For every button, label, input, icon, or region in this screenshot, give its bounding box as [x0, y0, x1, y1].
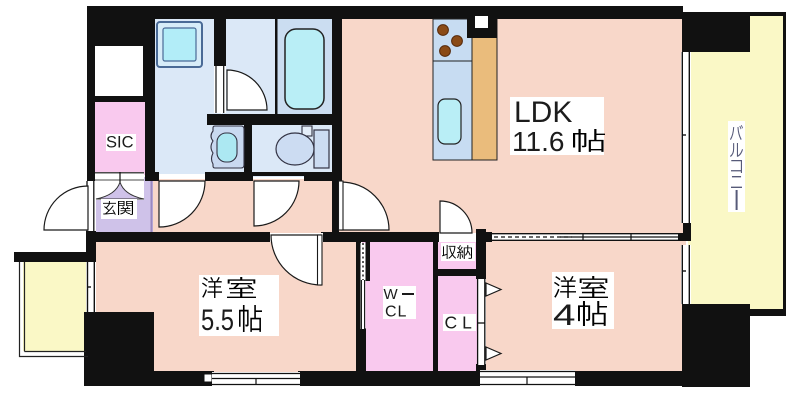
- svg-text:SIC: SIC: [106, 134, 134, 152]
- svg-text:LDK: LDK: [514, 96, 572, 129]
- svg-text:CL: CL: [385, 304, 407, 321]
- svg-text:4: 4: [553, 298, 576, 332]
- svg-text:W: W: [384, 286, 399, 303]
- svg-text:11.6: 11.6: [512, 126, 564, 157]
- svg-text:CL: CL: [445, 313, 477, 333]
- svg-text:5.5: 5.5: [201, 304, 234, 337]
